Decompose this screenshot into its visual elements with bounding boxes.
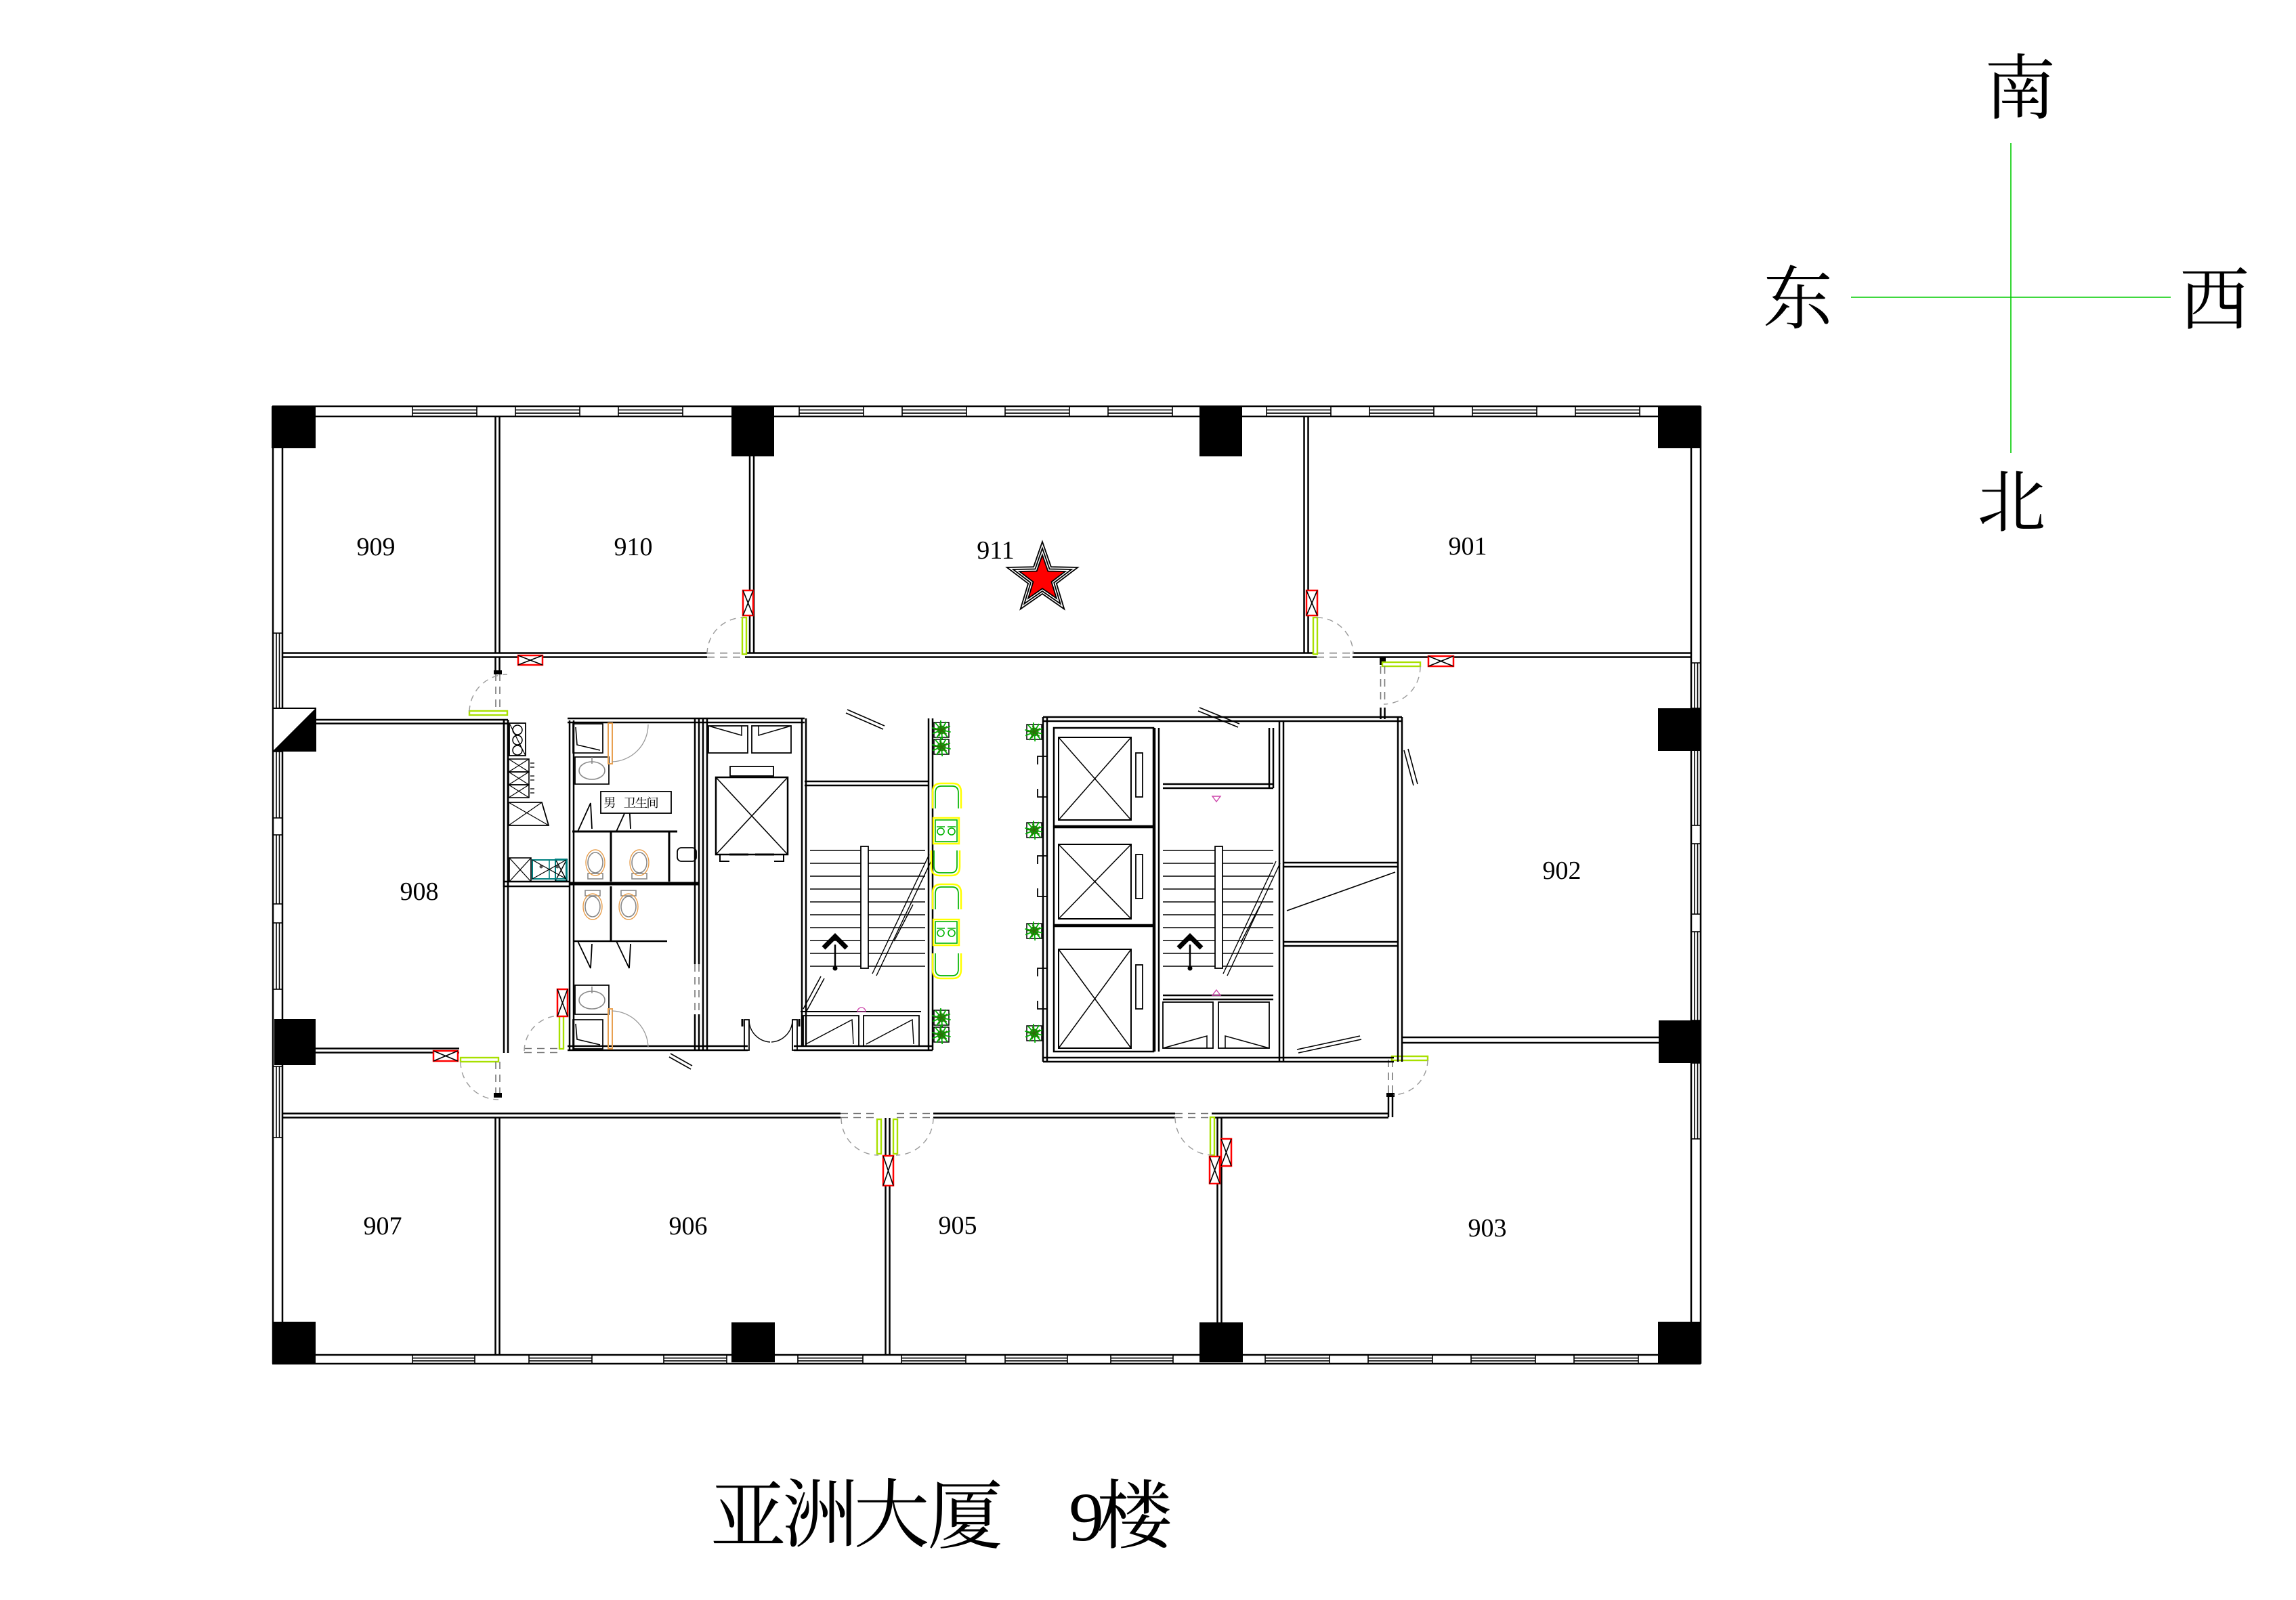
svg-text:905: 905	[939, 1211, 977, 1240]
svg-text:9: 9	[1069, 1479, 1104, 1556]
svg-text:903: 903	[1468, 1214, 1507, 1242]
svg-text:902: 902	[1543, 857, 1581, 885]
svg-text:910: 910	[614, 533, 653, 561]
svg-text:901: 901	[1449, 532, 1487, 561]
svg-text:908: 908	[400, 878, 439, 906]
svg-text:911: 911	[977, 536, 1015, 565]
svg-text:906: 906	[669, 1212, 708, 1240]
svg-text:909: 909	[357, 533, 396, 561]
svg-text:907: 907	[364, 1212, 402, 1240]
